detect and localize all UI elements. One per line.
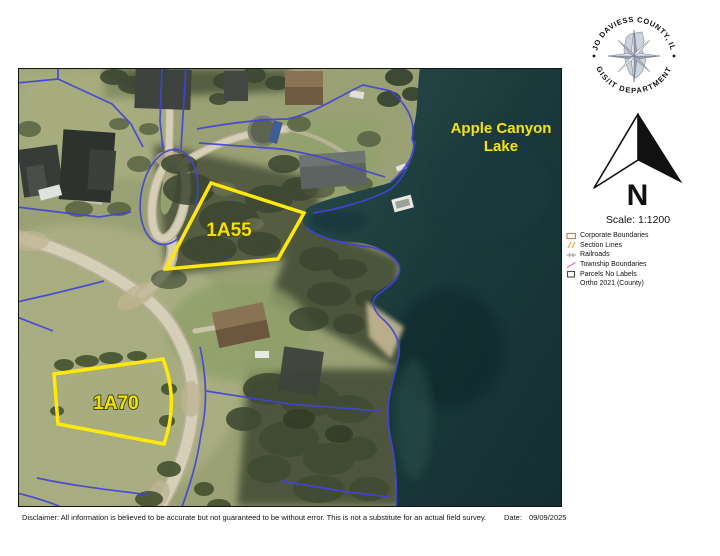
date-value: 09/09/2025 bbox=[529, 513, 567, 522]
legend-item: Corporate Boundaries bbox=[566, 231, 718, 241]
corporate-boundaries-icon bbox=[566, 232, 577, 240]
legend-item: Railroads bbox=[566, 250, 718, 260]
parcel-label-1a70: 1A70 bbox=[93, 393, 138, 414]
date-line: Date: 09/09/2025 bbox=[504, 513, 566, 522]
legend-item-label: Parcels No Labels bbox=[580, 271, 637, 278]
parcel-label-1a55: 1A55 bbox=[206, 220, 252, 241]
scale-text: Scale: 1:1200 bbox=[576, 214, 700, 226]
map-export-page: 1A55 1A70 Apple Canyon Lake bbox=[0, 0, 720, 556]
parcels-no-labels-icon bbox=[566, 270, 577, 278]
lake-label-line1: Apple Canyon bbox=[451, 120, 552, 137]
disclaimer-text: Disclaimer: All information is believed … bbox=[22, 513, 486, 522]
lake-label-line2: Lake bbox=[484, 138, 518, 155]
county-gis-seal: JO DAVIESS COUNTY, IL GIS/IT DEPARTMENT bbox=[584, 6, 684, 106]
legend-item: Parcels No Labels bbox=[566, 269, 718, 279]
north-arrow-icon bbox=[592, 110, 684, 190]
legend-item: Township Boundaries bbox=[566, 260, 718, 270]
legend-item-label: Corporate Boundaries bbox=[580, 232, 649, 239]
legend-item-label: Railroads bbox=[580, 251, 610, 258]
basemap-note: Ortho 2021 (County) bbox=[566, 279, 718, 289]
railroads-icon bbox=[566, 251, 577, 259]
map-canvas: 1A55 1A70 Apple Canyon Lake bbox=[18, 68, 562, 507]
township-boundaries-icon bbox=[566, 261, 577, 269]
aerial-basemap: 1A55 1A70 Apple Canyon Lake bbox=[19, 69, 561, 506]
legend-item-label: Township Boundaries bbox=[580, 261, 647, 268]
section-lines-icon bbox=[566, 241, 577, 249]
legend-item: Section Lines bbox=[566, 241, 718, 251]
legend: Corporate Boundaries Section Lines Railr… bbox=[566, 231, 718, 289]
date-label: Date: bbox=[504, 513, 522, 522]
north-label: N bbox=[592, 182, 684, 210]
parked-car bbox=[255, 351, 269, 358]
legend-item-label: Section Lines bbox=[580, 242, 622, 249]
